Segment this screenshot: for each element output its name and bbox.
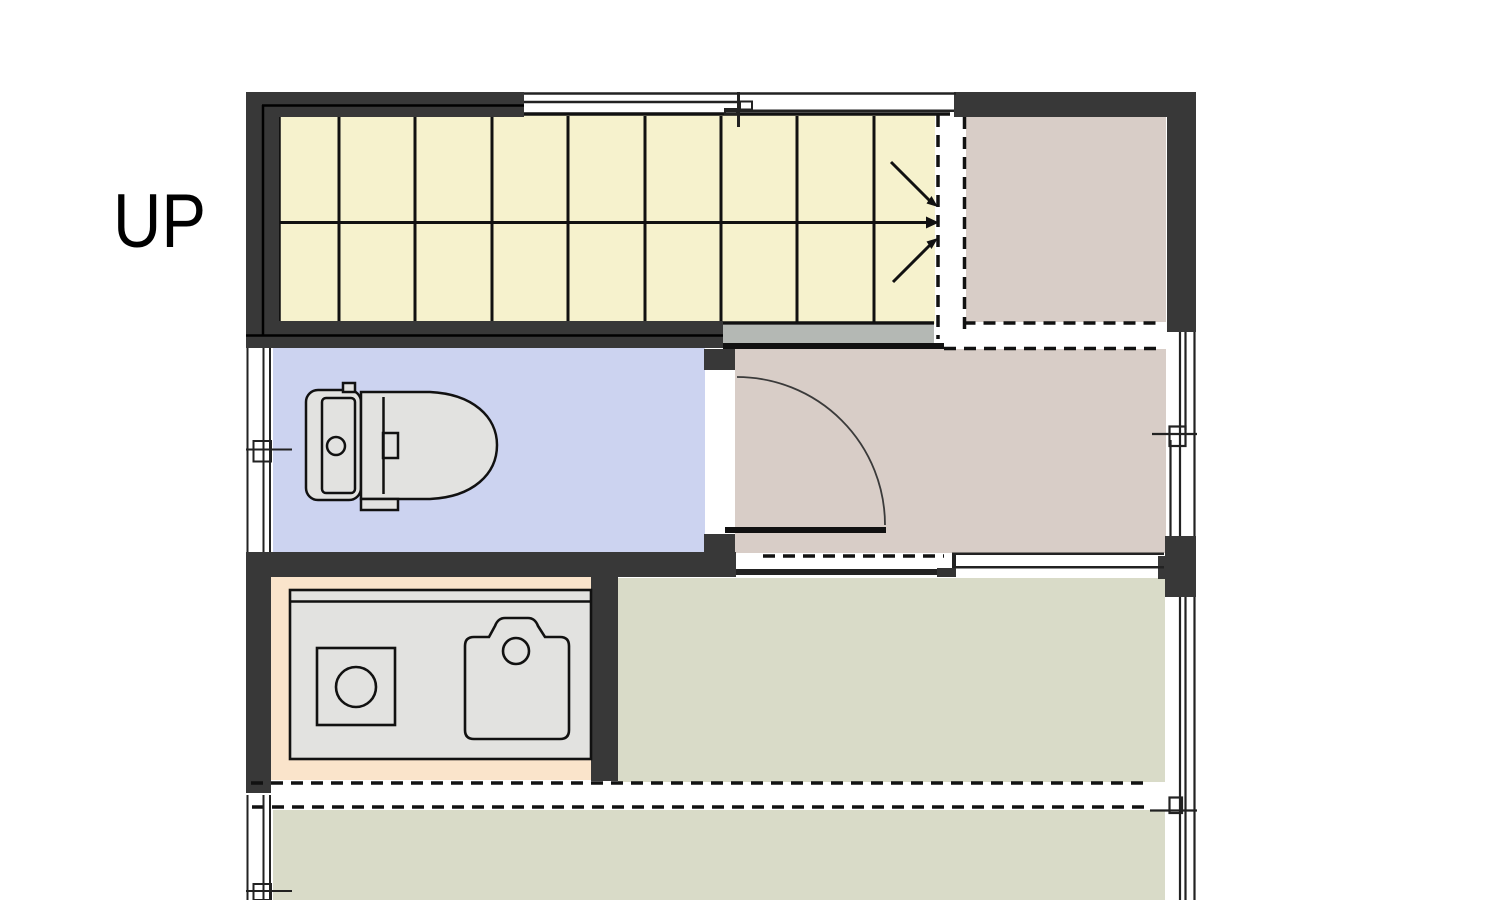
svg-text:UP: UP [113,179,206,264]
